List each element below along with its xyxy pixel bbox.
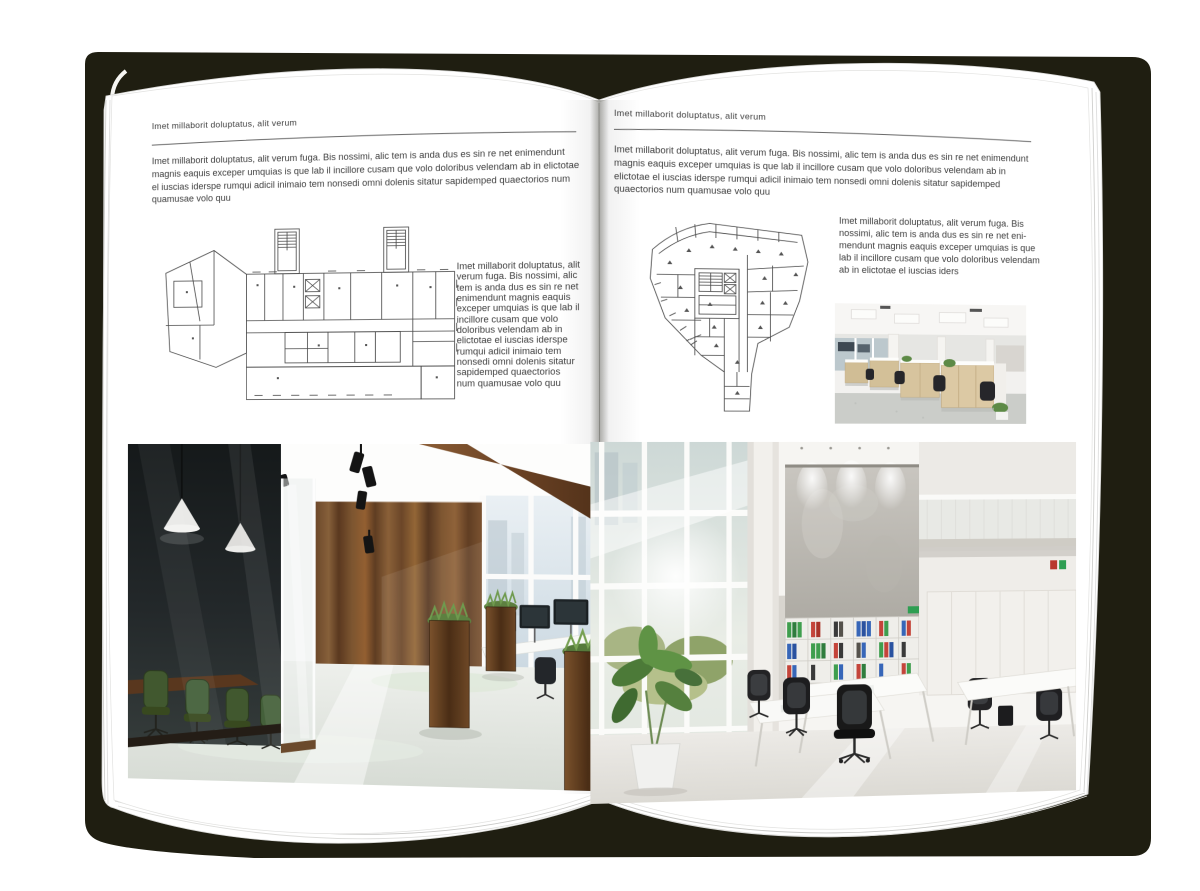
mezzanine-balcony [919,442,1076,558]
office-photo-right [590,442,1076,804]
book-spread-mockup: Imet millaborit doluptatus, alit verum I… [0,0,1200,891]
glass-partition [281,478,316,753]
right-side-text: Imet millaborit doluptatus, alit verum f… [839,216,1042,279]
floorplan-right [635,210,828,420]
right-header-rule [613,124,1033,145]
safety-sign-red [1050,560,1057,569]
bookshelf [785,616,919,683]
plant-pot [996,412,1008,420]
safety-sign-green [1059,560,1066,569]
concrete-wall [785,460,919,618]
waste-bin [998,706,1013,726]
right-kicker: Imet millaborit doluptatus, alit verum [614,108,766,122]
exit-sign [908,606,920,613]
office-photo-small [835,303,1026,424]
left-header-rule [151,127,579,148]
left-page: Imet millaborit doluptatus, alit verum I… [118,78,616,809]
right-page: Imet millaborit doluptatus, alit verum I… [584,73,1084,812]
left-kicker: Imet millaborit doluptatus, alit verum [152,117,297,131]
left-side-text: Imet millaborit doluptatus, alit verum f… [457,259,582,388]
office-photo-left [128,444,612,792]
glass-meeting-room [128,444,283,751]
left-intro-paragraph: Imet millaborit doluptatus, alit verum f… [152,145,580,206]
right-intro-paragraph: Imet millaborit doluptatus, alit verum f… [614,143,1034,204]
floorplan-left [156,220,459,416]
